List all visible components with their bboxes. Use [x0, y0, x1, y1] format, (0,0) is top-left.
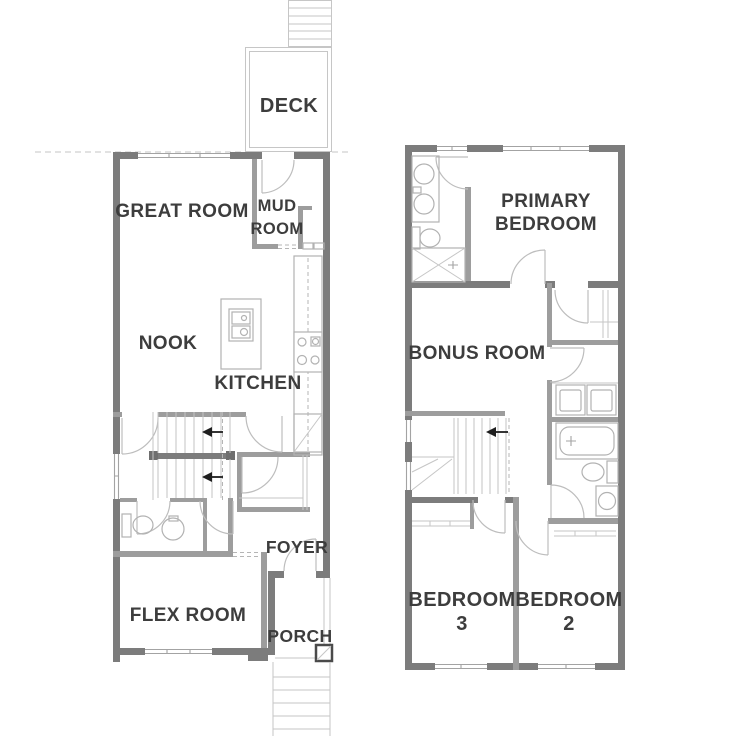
powder-room [122, 514, 184, 540]
primary-bedroom-label-line1: PRIMARY [501, 191, 591, 212]
second-floor-plan: PRIMARY BEDROOM BONUS ROOM BEDROOM 3 BED… [405, 145, 625, 670]
kitchen-label: KITCHEN [214, 373, 301, 394]
primary-bedroom-label-line2: BEDROOM [495, 214, 597, 235]
bedroom3-label-line1: BEDROOM [408, 589, 515, 611]
nook-label: NOOK [139, 333, 198, 354]
stair-direction-arrow [486, 427, 508, 437]
floor2-stairs [412, 418, 509, 494]
deck-stairs [289, 1, 332, 47]
stove-fixture [294, 332, 322, 372]
double-vanity-fixture [412, 156, 439, 222]
mud-room-label-line2: ROOM [251, 220, 304, 238]
floor1-labels: GREAT ROOM MUD ROOM NOOK KITCHEN FOYER F… [115, 197, 332, 646]
floor1-windows [115, 154, 231, 654]
kitchen-island [221, 299, 261, 369]
porch [273, 578, 332, 736]
sink-fixture [162, 516, 184, 540]
mud-room-label-line1: MUD [258, 197, 297, 215]
bedroom2-closet [554, 531, 616, 536]
foyer-closet [239, 455, 307, 510]
bedroom2-label-line1: BEDROOM [515, 589, 622, 611]
deck-label: DECK [260, 95, 318, 117]
foyer-label: FOYER [266, 537, 328, 557]
shower-fixture [412, 248, 465, 282]
great-room-label: GREAT ROOM [115, 201, 248, 222]
porch-steps [273, 662, 330, 736]
bedroom3-label-line2: 3 [456, 613, 468, 635]
first-floor-plan: DECK [35, 1, 348, 737]
walk-in-closet [590, 290, 618, 338]
floor-plan-svg: DECK [0, 0, 745, 737]
bathtub-fixture [556, 423, 618, 459]
flex-room-label: FLEX ROOM [130, 605, 247, 626]
laundry-closet [552, 383, 618, 415]
kitchen-counter [294, 256, 322, 455]
sink-fixture [596, 486, 618, 516]
hall-bath [556, 423, 618, 516]
bedroom2-label-line2: 2 [563, 613, 575, 635]
deck: DECK [246, 48, 332, 152]
bonus-room-label: BONUS ROOM [409, 343, 546, 364]
floor-plan-image: DECK [0, 0, 745, 737]
primary-bath [412, 156, 465, 282]
bedroom3-closet [412, 521, 470, 526]
toilet-fixture [412, 227, 440, 249]
porch-label: PORCH [267, 626, 332, 646]
toilet-fixture [582, 461, 618, 483]
